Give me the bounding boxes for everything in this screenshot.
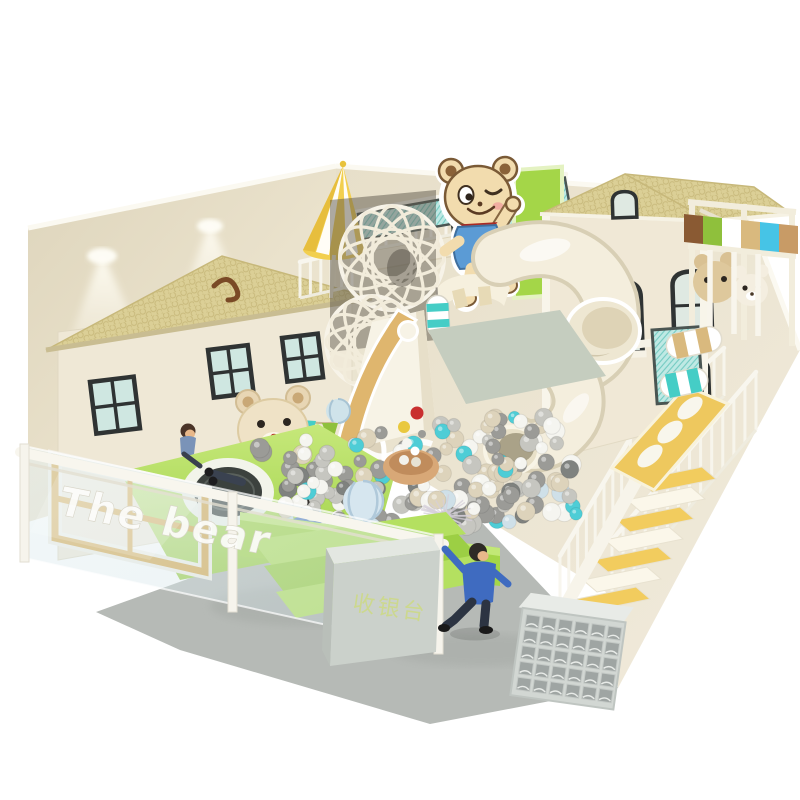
playground-render-canvas: The bear 收银台 bbox=[0, 0, 800, 800]
fountain-ball-gray bbox=[418, 430, 426, 438]
wicker-opening bbox=[387, 249, 417, 287]
ball-highlight bbox=[294, 497, 299, 502]
fountain-ball-white bbox=[402, 438, 412, 448]
ball-highlight bbox=[564, 463, 569, 468]
plastic-ball bbox=[328, 461, 343, 476]
ball-highlight bbox=[361, 432, 367, 438]
ball-highlight bbox=[352, 440, 356, 444]
plastic-ball bbox=[515, 457, 527, 469]
ball-highlight bbox=[459, 449, 464, 454]
ball-highlight bbox=[485, 484, 489, 488]
plastic-ball bbox=[283, 451, 297, 465]
plastic-ball bbox=[250, 438, 270, 458]
ball-highlight bbox=[331, 464, 336, 469]
plastic-ball bbox=[517, 502, 536, 521]
ball-highlight bbox=[538, 444, 542, 448]
ball-highlight bbox=[310, 479, 314, 483]
ball-highlight bbox=[505, 517, 509, 521]
ball-highlight bbox=[438, 426, 443, 431]
plastic-ball bbox=[522, 479, 541, 498]
ball-highlight bbox=[466, 459, 472, 465]
left-house-window-3 bbox=[282, 334, 323, 382]
plastic-ball bbox=[514, 414, 528, 428]
plastic-ball bbox=[486, 439, 501, 454]
ball-highlight bbox=[516, 417, 520, 421]
ball-highlight bbox=[520, 505, 526, 511]
ball-highlight bbox=[546, 506, 552, 512]
ball-highlight bbox=[511, 414, 515, 418]
ball-highlight bbox=[359, 470, 364, 475]
slide-porthole bbox=[399, 322, 418, 341]
ball-highlight bbox=[471, 485, 476, 490]
playground-scene: The bear 收银台 bbox=[0, 0, 800, 800]
ball-highlight bbox=[436, 419, 441, 424]
plastic-ball bbox=[542, 503, 560, 521]
ball-highlight bbox=[339, 484, 343, 488]
plastic-ball bbox=[550, 436, 564, 450]
plastic-ball bbox=[299, 434, 312, 447]
ball-highlight bbox=[476, 432, 480, 436]
plastic-ball bbox=[447, 418, 460, 431]
ball-highlight bbox=[356, 457, 360, 461]
ball-highlight bbox=[457, 481, 462, 486]
ball-highlight bbox=[553, 439, 557, 443]
plastic-ball bbox=[482, 481, 496, 495]
ball-highlight bbox=[284, 481, 288, 485]
ball-highlight bbox=[489, 442, 493, 446]
ball-highlight bbox=[442, 445, 446, 449]
ball-highlight bbox=[541, 457, 546, 462]
ball-highlight bbox=[481, 467, 486, 472]
ball-highlight bbox=[517, 459, 521, 463]
ball-highlight bbox=[432, 494, 437, 499]
striped-ball-small bbox=[326, 399, 350, 423]
ball-highlight bbox=[450, 421, 454, 425]
plastic-ball bbox=[502, 515, 516, 529]
ball-highlight bbox=[309, 465, 313, 469]
plastic-ball bbox=[524, 424, 539, 439]
ball-highlight bbox=[494, 455, 498, 459]
plastic-ball bbox=[536, 442, 548, 454]
ball-highlight bbox=[413, 491, 419, 497]
plastic-ball bbox=[298, 447, 312, 461]
ball-highlight bbox=[555, 478, 560, 483]
ball-highlight bbox=[374, 464, 379, 469]
ball-highlight bbox=[322, 448, 327, 453]
ball-highlight bbox=[488, 414, 493, 419]
plastic-ball bbox=[319, 445, 335, 461]
ball-highlight bbox=[396, 499, 401, 504]
ball-highlight bbox=[506, 490, 511, 495]
plastic-ball bbox=[307, 477, 319, 489]
ball-highlight bbox=[526, 482, 532, 488]
striped-beach-ball bbox=[343, 481, 383, 521]
ball-highlight bbox=[300, 487, 304, 491]
ball-highlight bbox=[291, 470, 296, 475]
ball-highlight bbox=[302, 436, 306, 440]
plastic-ball bbox=[503, 487, 520, 504]
plastic-ball bbox=[538, 454, 555, 471]
fountain-ball-white bbox=[411, 447, 420, 456]
ball-highlight bbox=[310, 503, 314, 507]
ball-highlight bbox=[286, 454, 290, 458]
plastic-ball bbox=[570, 508, 583, 521]
plastic-ball bbox=[287, 468, 304, 485]
plastic-ball bbox=[492, 453, 505, 466]
ball-highlight bbox=[565, 491, 569, 495]
fountain-ball-red bbox=[411, 407, 424, 420]
plastic-ball bbox=[462, 456, 481, 475]
plastic-ball bbox=[440, 443, 453, 456]
ball-highlight bbox=[438, 468, 443, 473]
ball-highlight bbox=[470, 505, 474, 509]
plastic-ball bbox=[562, 489, 577, 504]
ball-highlight bbox=[485, 437, 489, 441]
ball-highlight bbox=[572, 510, 576, 514]
ball-highlight bbox=[547, 420, 552, 425]
plastic-ball bbox=[543, 417, 560, 434]
ball-highlight bbox=[450, 433, 455, 438]
shoe-cubby-shelf bbox=[506, 592, 633, 711]
plastic-ball bbox=[484, 411, 500, 427]
cashier-counter: 收银台 bbox=[322, 536, 440, 666]
fence-post bbox=[20, 444, 29, 562]
plastic-ball bbox=[561, 460, 579, 478]
ball-highlight bbox=[254, 442, 260, 448]
ball-highlight bbox=[527, 426, 532, 431]
ball-highlight bbox=[300, 449, 304, 453]
plastic-ball bbox=[349, 438, 363, 452]
ball-highlight bbox=[377, 429, 381, 433]
plastic-ball bbox=[354, 455, 367, 468]
fountain-ball-yellow bbox=[398, 421, 410, 433]
left-house-window-1 bbox=[90, 377, 140, 434]
ball-highlight bbox=[538, 411, 543, 416]
gable-window bbox=[612, 191, 637, 218]
